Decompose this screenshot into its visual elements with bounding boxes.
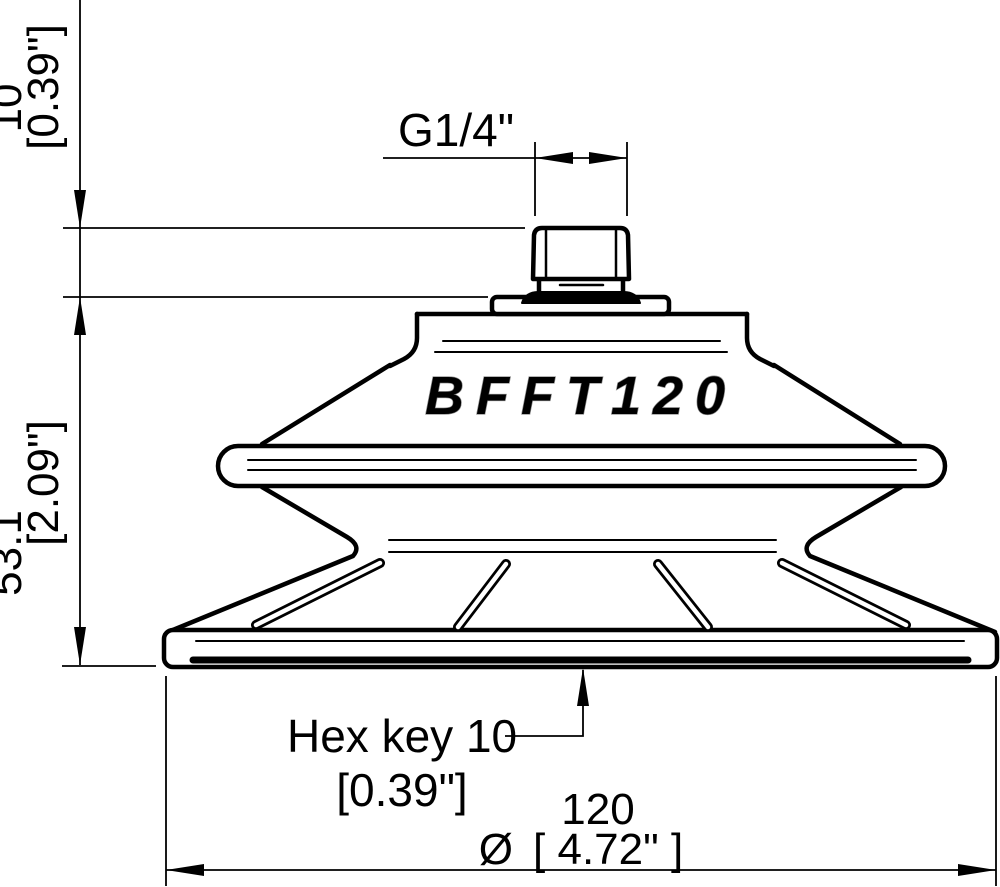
dimension-body-height: 53.1 [2.09"] bbox=[0, 420, 156, 666]
upper-cone-right-edge bbox=[774, 365, 900, 444]
diameter-inch-value: [ 4.72" ] bbox=[533, 825, 683, 874]
slot-3-inner bbox=[658, 564, 708, 627]
brand-model-text: BFFT120 bbox=[425, 366, 737, 426]
drawing-svg: 10 [0.39"] 53.1 [2.09"] G1/4" bbox=[0, 0, 1000, 887]
disc-slots bbox=[256, 563, 906, 627]
technical-drawing: 10 [0.39"] 53.1 [2.09"] G1/4" bbox=[0, 0, 1000, 887]
dimension-thread: G1/4" bbox=[383, 104, 627, 216]
bellows-fold bbox=[218, 446, 945, 486]
suction-cup: BFFT120 bbox=[164, 228, 997, 667]
groove-left-edge bbox=[168, 487, 356, 632]
callout-hex-key: Hex key 10 [0.39"] bbox=[287, 668, 589, 816]
arrowhead-right-icon bbox=[958, 864, 996, 876]
hex-key-inch-label: [0.39"] bbox=[336, 764, 467, 816]
dim-height-inch-label: [2.09"] bbox=[19, 420, 68, 546]
plate-right-edge bbox=[747, 314, 774, 366]
hex-key-label: Hex key 10 bbox=[287, 710, 517, 762]
dimension-top-height: 10 [0.39"] bbox=[0, 0, 525, 665]
diameter-symbol: Ø bbox=[479, 825, 513, 874]
arrowhead-down-icon bbox=[74, 627, 86, 665]
slot-2-inner bbox=[458, 564, 506, 627]
thread-port bbox=[533, 228, 629, 279]
upper-cone-left-edge bbox=[262, 365, 390, 444]
arrowhead-right-icon bbox=[589, 152, 627, 164]
arrowhead-left-icon bbox=[535, 152, 573, 164]
dim-top-inch-label: [0.39"] bbox=[19, 24, 68, 150]
arrowhead-left-icon bbox=[166, 864, 204, 876]
groove-right-edge bbox=[807, 487, 995, 632]
plate-left-edge bbox=[390, 314, 417, 366]
arrowhead-down-icon bbox=[74, 190, 86, 228]
thread-size-label: G1/4" bbox=[398, 104, 514, 156]
arrowhead-up-icon bbox=[577, 668, 589, 706]
arrowhead-up-icon bbox=[74, 297, 86, 335]
diameter-inch-label: Ø[ 4.72" ] bbox=[479, 825, 683, 874]
dimension-diameter: 120 Ø[ 4.72" ] bbox=[166, 676, 996, 886]
